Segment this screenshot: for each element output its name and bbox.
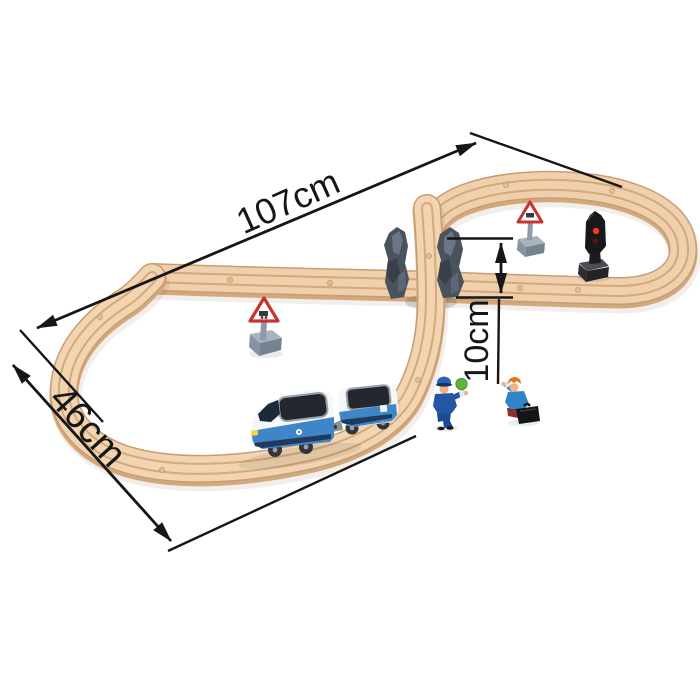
sign-glyph xyxy=(259,311,268,316)
dimension-height-label: 10cm xyxy=(458,299,496,382)
conductor-figurine xyxy=(433,377,468,432)
dimension-length-label: 107cm xyxy=(230,161,345,242)
sign-glyph xyxy=(526,213,534,218)
locomotive-headlight xyxy=(251,430,258,436)
coach-side-window xyxy=(380,405,388,413)
bridge-rock-support-left xyxy=(384,227,409,299)
traveler-figurine xyxy=(501,377,540,426)
locomotive-roof-window xyxy=(278,392,329,422)
scene-canvas: 107cm 46cm 10cm xyxy=(0,0,700,700)
traveler-hair xyxy=(508,377,521,384)
height-leader xyxy=(498,299,499,384)
signal-red-light xyxy=(593,228,599,234)
traveler-face xyxy=(510,383,519,392)
traffic-signal xyxy=(578,211,610,282)
crossing-sign-left xyxy=(249,298,283,358)
traveler-shirt xyxy=(505,391,529,409)
product-photo-train-set: 107cm 46cm 10cm xyxy=(0,0,700,700)
crossing-sign-right xyxy=(516,202,546,257)
suitcase xyxy=(516,406,540,424)
signal-lower-light xyxy=(592,238,597,243)
sign-post xyxy=(527,222,533,240)
sign-post xyxy=(260,322,267,340)
